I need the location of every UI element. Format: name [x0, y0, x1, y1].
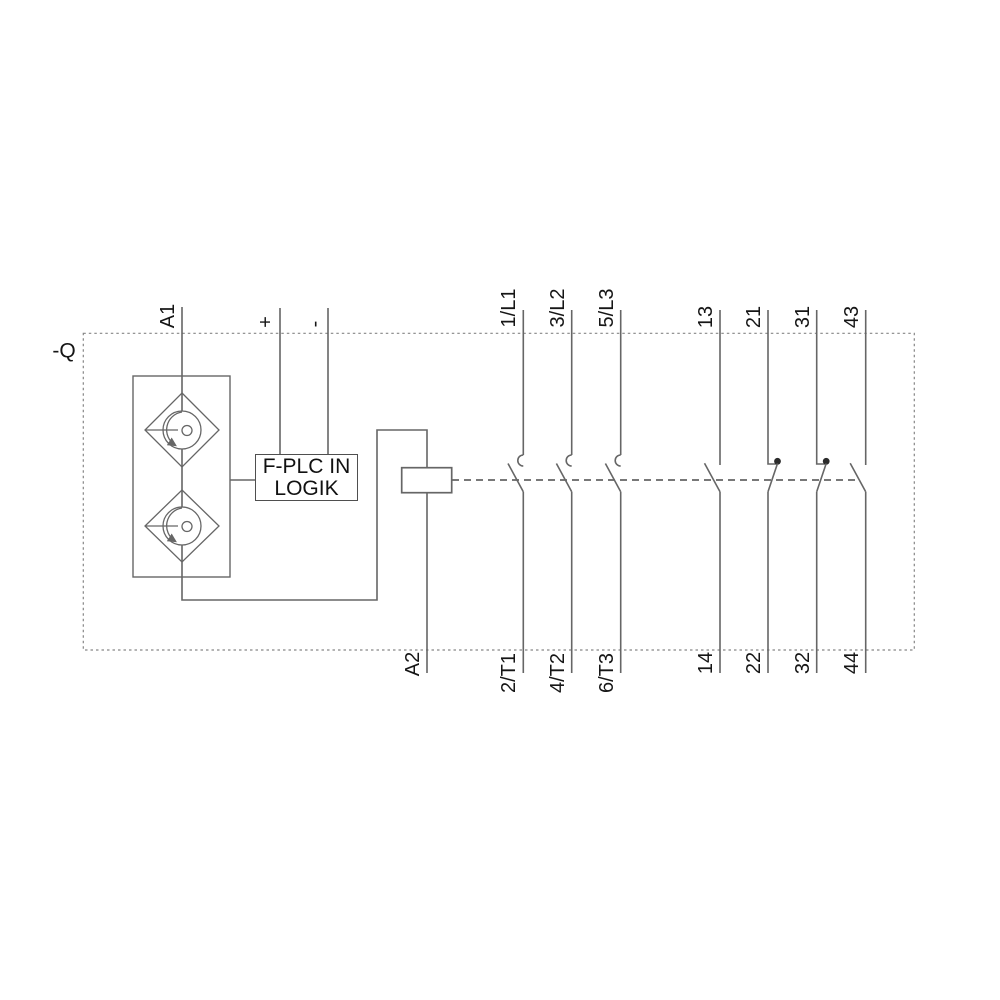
aux-contact-no-43-44 — [850, 310, 866, 673]
terminal-label-a2: A2 — [403, 652, 423, 676]
supply-plus-label: + — [256, 316, 276, 328]
main-contact-pole-1 — [508, 310, 523, 673]
actuator-block — [402, 468, 856, 493]
terminal-label-22: 22 — [744, 652, 764, 674]
aux-contact-nc-31-32 — [817, 310, 830, 673]
terminal-label-13: 13 — [696, 306, 716, 328]
supply-minus-label: - — [305, 321, 325, 328]
terminal-label-43: 43 — [842, 306, 862, 328]
terminal-label-32: 32 — [793, 652, 813, 674]
plc-logic-box-line1: F-PLC IN — [263, 456, 351, 478]
main-contacts — [508, 310, 621, 673]
enclosure-dashed-border — [83, 333, 914, 650]
terminal-label-1l1: 1/L1 — [499, 289, 519, 328]
terminal-label-44: 44 — [842, 652, 862, 674]
terminal-label-3l2: 3/L2 — [548, 289, 568, 328]
terminal-label-21: 21 — [744, 306, 764, 328]
terminal-label-14: 14 — [696, 652, 716, 674]
device-designation-label: -Q — [52, 341, 75, 362]
main-contact-pole-2 — [556, 310, 571, 673]
plc-logic-box-line2: LOGIK — [274, 478, 338, 500]
aux-contact-no-13-14 — [705, 310, 721, 673]
terminal-label-5l3: 5/L3 — [597, 289, 617, 328]
schematic-linework — [0, 0, 1000, 1000]
plc-logic-box: F-PLC IN LOGIK — [255, 454, 358, 501]
main-contact-pole-3 — [605, 310, 620, 673]
terminal-label-4t2: 4/T2 — [548, 653, 568, 693]
schematic-canvas: -Q F-PLC IN LOGIK A1 A2 + - 1/L1 3/L2 5/… — [0, 0, 1000, 1000]
terminal-label-31: 31 — [793, 306, 813, 328]
terminal-label-2t1: 2/T1 — [499, 653, 519, 693]
terminal-label-a1: A1 — [158, 304, 178, 328]
aux-contacts — [705, 310, 866, 673]
aux-contact-nc-21-22 — [768, 310, 781, 673]
terminal-label-6t3: 6/T3 — [597, 653, 617, 693]
